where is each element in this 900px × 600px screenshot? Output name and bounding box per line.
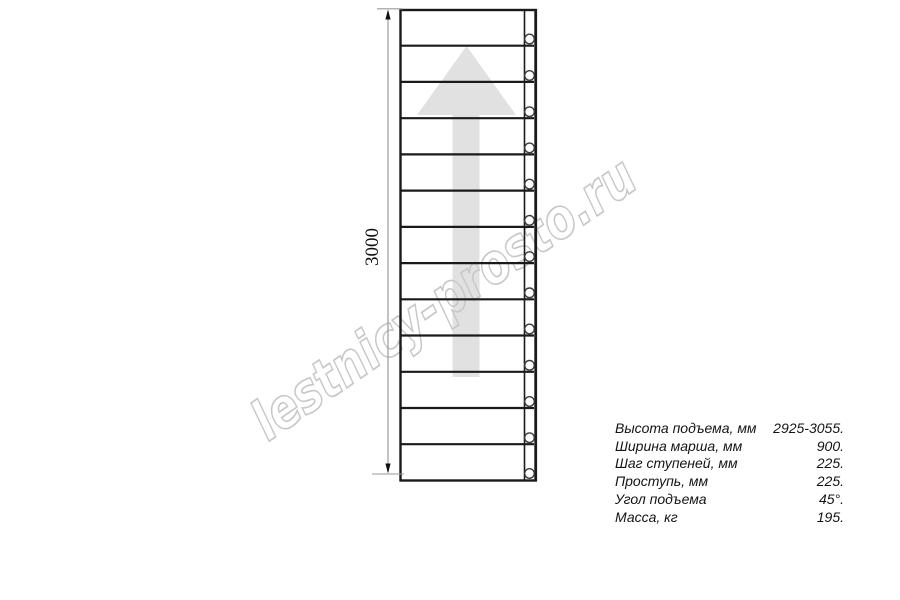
mount-circle [525, 216, 535, 226]
spec-value: 900. [817, 438, 844, 456]
mount-circle [525, 324, 535, 334]
spec-table: Высота подъема, мм 2925-3055. Ширина мар… [615, 420, 844, 526]
mount-circle [525, 433, 535, 443]
dimension-label: 3000 [362, 228, 383, 266]
spec-row-angle: Угол подъема 45°. [615, 491, 844, 509]
spec-value: 45°. [819, 491, 844, 509]
spec-value: 225. [817, 455, 844, 473]
dimension-arrow-up [385, 10, 390, 20]
mount-circle [525, 288, 535, 298]
dimension-arrow-down [385, 464, 390, 474]
mount-circle [525, 252, 535, 262]
spec-row-step-pitch: Шаг ступеней, мм 225. [615, 455, 844, 473]
spec-value: 225. [817, 473, 844, 491]
spec-label: Ширина марша, мм [615, 438, 742, 456]
spec-value: 2925-3055. [773, 420, 844, 438]
spec-row-mass: Масса, кг 195. [615, 509, 844, 527]
spec-row-width: Ширина марша, мм 900. [615, 438, 844, 456]
spec-row-height: Высота подъема, мм 2925-3055. [615, 420, 844, 438]
mount-circle [525, 179, 535, 189]
height-dimension: 3000 [362, 9, 404, 474]
mount-circle [525, 34, 535, 44]
spec-label: Высота подъема, мм [615, 420, 757, 438]
spec-label: Масса, кг [615, 509, 678, 527]
mount-circle [525, 71, 535, 81]
mount-circle [525, 469, 535, 479]
mount-circle [525, 143, 535, 153]
mount-circle [525, 397, 535, 407]
spec-label: Угол подъема [615, 491, 707, 509]
mount-circles [525, 34, 535, 478]
spec-label: Проступь, мм [615, 473, 708, 491]
spec-row-tread: Проступь, мм 225. [615, 473, 844, 491]
mount-circle [525, 361, 535, 371]
spec-value: 195. [817, 509, 844, 527]
spec-label: Шаг ступеней, мм [615, 455, 738, 473]
mount-circle [525, 107, 535, 117]
